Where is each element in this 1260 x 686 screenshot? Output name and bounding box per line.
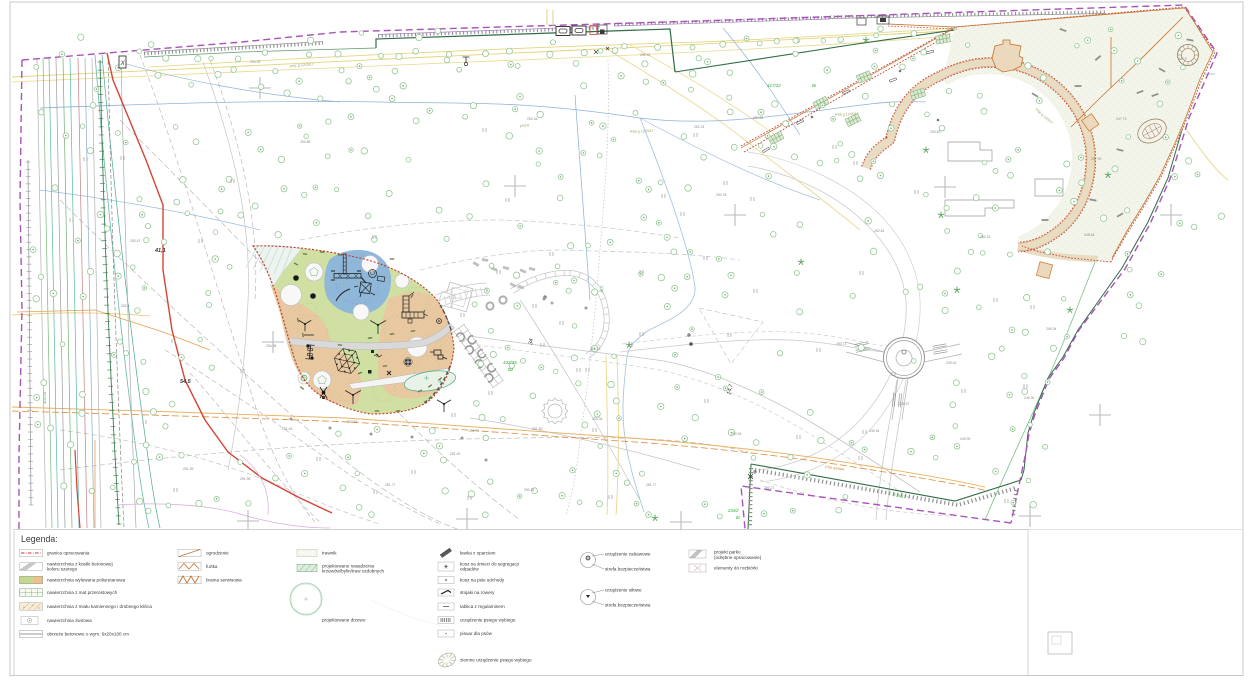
svg-text:kosz na śmieci do segregacji: kosz na śmieci do segregacji (460, 561, 519, 566)
svg-text:247.73: 247.73 (1116, 117, 1126, 121)
svg-text:403.10: 403.10 (42, 391, 47, 404)
svg-text:252.4: 252.4 (121, 304, 130, 308)
svg-text:elementy do rozbiórki: elementy do rozbiórki (714, 566, 758, 571)
svg-text:tablica z regulaminem: tablica z regulaminem (460, 604, 505, 609)
svg-text:strefa bezpieczeństwa: strefa bezpieczeństwa (605, 567, 651, 572)
svg-text:251.99: 251.99 (183, 467, 193, 471)
svg-text:brama serwisowa: brama serwisowa (206, 578, 242, 583)
svg-text:254.68: 254.68 (300, 140, 310, 144)
svg-text:250.27: 250.27 (764, 486, 774, 490)
svg-text:urządzenie psiego wybiegu: urządzenie psiego wybiegu (460, 618, 516, 623)
svg-text:249.02: 249.02 (946, 361, 956, 365)
svg-text:247.90: 247.90 (1091, 157, 1101, 161)
svg-text:432/35: 432/35 (503, 360, 517, 365)
svg-text:45.5: 45.5 (600, 286, 604, 294)
svg-text:253.47: 253.47 (130, 239, 140, 243)
svg-text:248.74: 248.74 (947, 27, 957, 31)
svg-text:nawierzchnia wylewana poliuret: nawierzchnia wylewana poliuretanowa (47, 578, 126, 583)
svg-text:Legenda:: Legenda: (21, 534, 58, 544)
svg-text:249.90: 249.90 (960, 437, 970, 441)
svg-text:furtka: furtka (206, 564, 218, 569)
svg-text:granica opracowania: granica opracowania (47, 551, 90, 556)
svg-text:ławka z oparciem: ławka z oparciem (460, 551, 496, 556)
svg-text:252.83: 252.83 (347, 420, 357, 424)
svg-text:34: 34 (528, 338, 535, 345)
svg-text:urządzenie siłowe: urządzenie siłowe (605, 588, 642, 593)
svg-text:254.08: 254.08 (266, 344, 276, 348)
svg-text:247.9: 247.9 (1178, 57, 1187, 61)
svg-text:koloru szarego: koloru szarego (47, 567, 78, 572)
svg-text:odpadów: odpadów (460, 567, 479, 572)
svg-text:stojaki na rowery: stojaki na rowery (460, 590, 495, 595)
svg-text:252.42: 252.42 (640, 53, 650, 57)
svg-text:252.24: 252.24 (694, 125, 704, 129)
svg-text:249.30: 249.30 (1024, 396, 1034, 400)
svg-text:248.67: 248.67 (899, 402, 909, 406)
svg-text:ogrodzenie: ogrodzenie (206, 551, 229, 556)
svg-text:(odrębne opracowanie): (odrębne opracowanie) (714, 555, 762, 560)
svg-text:krzewów/bylin/traw ozdobnych: krzewów/bylin/traw ozdobnych (322, 569, 384, 574)
svg-text:250.71: 250.71 (836, 342, 846, 346)
svg-text:252.34: 252.34 (527, 117, 537, 121)
svg-text:251.77: 251.77 (385, 483, 395, 487)
svg-text:obrzeże betonowe o wym. 6x20x1: obrzeże betonowe o wym. 6x20x100 cm (47, 632, 129, 637)
svg-text:249.34: 249.34 (869, 429, 879, 433)
svg-text:249.34: 249.34 (1046, 327, 1056, 331)
svg-text:projektowane drzewo: projektowane drzewo (322, 618, 366, 623)
svg-text:250.78: 250.78 (716, 193, 726, 197)
svg-text:nawierzchnia żwirowa: nawierzchnia żwirowa (47, 618, 92, 623)
svg-text:41,1: 41,1 (154, 248, 166, 254)
svg-text:251.50: 251.50 (532, 427, 542, 431)
svg-text:251.77: 251.77 (646, 483, 656, 487)
svg-text:250.39: 250.39 (524, 488, 534, 492)
svg-text:nawierzchnia z miału kamienneg: nawierzchnia z miału kamiennego i drobne… (47, 604, 152, 609)
svg-text:251.98: 251.98 (240, 477, 250, 481)
svg-text:253.34: 253.34 (592, 417, 602, 421)
svg-text:251.74: 251.74 (469, 429, 479, 433)
svg-text:urządzenie zabawowe: urządzenie zabawowe (605, 552, 651, 557)
svg-text:250.93: 250.93 (731, 432, 741, 436)
svg-text:54,5: 54,5 (180, 379, 192, 385)
svg-text:kosz na psie odchody: kosz na psie odchody (460, 578, 505, 583)
svg-text:234/2: 234/2 (727, 508, 739, 513)
svg-text:252.19: 252.19 (980, 235, 990, 239)
svg-text:ziemne urządzenie psiego wybie: ziemne urządzenie psiego wybiegu (460, 658, 532, 663)
svg-text:251.40: 251.40 (450, 452, 460, 456)
svg-text:248.48: 248.48 (1084, 233, 1094, 237)
svg-text:253.73: 253.73 (590, 347, 600, 351)
svg-text:nawierzchnia z mat przerostowy: nawierzchnia z mat przerostowych (47, 590, 118, 595)
svg-text:projekt parku: projekt parku (714, 550, 741, 555)
svg-text:250.84: 250.84 (753, 116, 763, 120)
svg-text:251.45: 251.45 (282, 427, 292, 431)
svg-text:253.82: 253.82 (930, 130, 940, 134)
svg-text:Bz: Bz (508, 367, 514, 372)
svg-text:254.99: 254.99 (250, 60, 260, 64)
svg-text:X: X (120, 60, 126, 67)
svg-text:nawierzchnia z kostki betonowe: nawierzchnia z kostki betonowej (47, 561, 113, 566)
svg-text:trawnik: trawnik (322, 551, 337, 556)
svg-text:252.81: 252.81 (874, 229, 884, 233)
svg-text:strefa bezpieczeństwa: strefa bezpieczeństwa (605, 603, 651, 608)
svg-text:pisuar dla psów: pisuar dla psów (460, 631, 493, 636)
svg-text:417/22: 417/22 (767, 83, 781, 88)
